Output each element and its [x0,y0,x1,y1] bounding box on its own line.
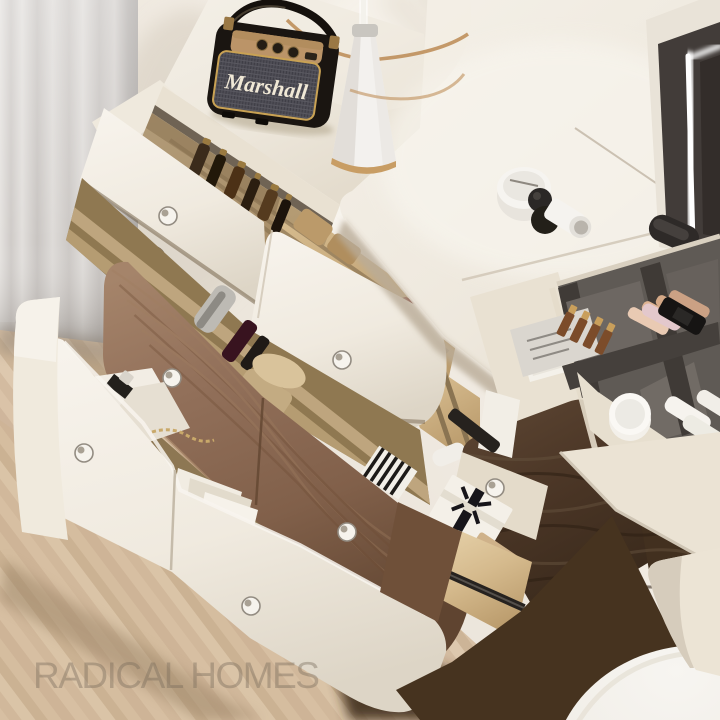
svg-text:RADICAL HOMES: RADICAL HOMES [33,655,318,696]
